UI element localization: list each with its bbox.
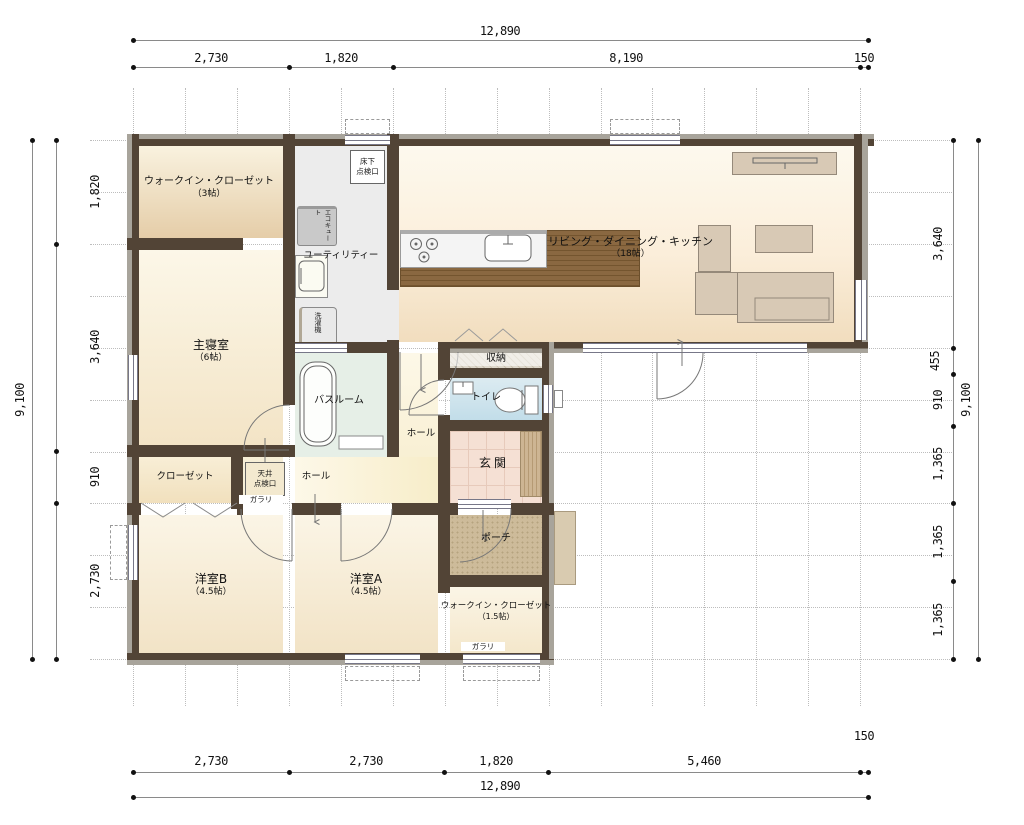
label-wic15: ウォークイン・クローゼット （1.5帖）	[440, 601, 552, 622]
label-toilet: トイレ	[450, 392, 522, 405]
floorplan: ウォークイン・クローゼット （3帖） 主寝室 （6帖） リビング・ダイニング・キ…	[133, 140, 868, 659]
label-louver-b: ガラリ	[461, 642, 505, 651]
dim-bottom-offset: 150	[841, 729, 887, 743]
dim-tick-dot	[858, 65, 863, 70]
dim-tick-dot	[976, 657, 981, 662]
dim-tick-dot	[287, 65, 292, 70]
room-name: リビング・ダイニング・キッチン	[508, 235, 753, 249]
dim-tick-dot	[391, 65, 396, 70]
room-size: （4.5帖）	[141, 587, 281, 598]
dim-tick-dot	[54, 242, 59, 247]
dim-right-5: 1,365	[931, 507, 945, 577]
dim-left-4: 2,730	[88, 546, 102, 616]
dim-left-2: 3,640	[88, 312, 102, 382]
dim-tick-dot	[287, 770, 292, 775]
floor-inspection-hatch: 床下 点検口	[350, 150, 385, 184]
dim-tick-dot	[54, 501, 59, 506]
label-closet: クローゼット	[139, 471, 231, 483]
dim-top-3: 8,190	[576, 51, 676, 65]
shutter-wic15-south	[463, 666, 540, 681]
dim-line-bottom-seg	[133, 772, 868, 773]
dim-left-3: 910	[88, 442, 102, 512]
room-name: 洋室B	[141, 572, 281, 587]
dim-tick-dot	[546, 770, 551, 775]
dim-top-4: 150	[840, 51, 888, 65]
room-size: （18帖）	[508, 249, 753, 260]
dim-tick-dot	[866, 65, 871, 70]
label-room-b: 洋室B （4.5帖）	[141, 572, 281, 598]
dim-right-4: 1,365	[931, 429, 945, 499]
dim-tick-dot	[866, 38, 871, 43]
label-utility: ユーティリティー	[283, 250, 399, 262]
label-hall-upper: ホール	[395, 428, 447, 440]
label-porch: ポーチ	[450, 533, 542, 546]
dim-tick-dot	[951, 657, 956, 662]
dim-tick-dot	[951, 346, 956, 351]
dim-tick-dot	[30, 657, 35, 662]
dim-right-6: 1,365	[931, 585, 945, 655]
ceiling-inspection-hatch: 天井 点検口	[245, 462, 285, 496]
dim-tick-dot	[976, 138, 981, 143]
dim-top-total: 12,890	[440, 24, 560, 38]
dim-tick-dot	[951, 501, 956, 506]
label-storage: 収納	[450, 353, 542, 366]
room-size: （3帖）	[135, 189, 283, 200]
dim-tick-dot	[951, 372, 956, 377]
floorplan-canvas: { "rooms": { "wic3": {"name": "ウォークイン・クロ…	[0, 0, 1024, 825]
dim-tick-dot	[54, 138, 59, 143]
dim-tick-dot	[951, 424, 956, 429]
dim-tick-dot	[131, 770, 136, 775]
label-louver-a: ガラリ	[239, 495, 283, 504]
dim-bottom-2: 2,730	[316, 754, 416, 768]
dim-tick-dot	[866, 795, 871, 800]
dim-top-1: 2,730	[161, 51, 261, 65]
dim-left-1: 1,820	[88, 157, 102, 227]
dim-tick-dot	[54, 449, 59, 454]
dim-right-1: 3,640	[931, 209, 945, 279]
dim-right-3: 910	[931, 365, 945, 435]
dim-bottom-3: 1,820	[446, 754, 546, 768]
dim-left-total: 9,100	[13, 365, 27, 435]
label-bathroom: バスルーム	[289, 395, 389, 408]
room-name: ウォークイン・クローゼット	[440, 601, 552, 612]
shutter-rooma-south	[345, 666, 420, 681]
dim-tick-dot	[131, 65, 136, 70]
label-master-bedroom: 主寝室 （6帖）	[139, 338, 283, 364]
label-washer: 洗濯機	[313, 312, 323, 346]
dim-tick-dot	[866, 770, 871, 775]
window-awning-utility	[345, 119, 390, 134]
dim-right-total: 9,100	[959, 365, 973, 435]
dim-bottom-4: 5,460	[654, 754, 754, 768]
label-hall-lower: ホール	[290, 471, 342, 483]
dim-line-left-total	[32, 140, 33, 659]
label-wic3: ウォークイン・クローゼット （3帖）	[135, 176, 283, 200]
shutter-roomb-west	[110, 525, 127, 580]
label-ldk: リビング・ダイニング・キッチン （18帖）	[508, 235, 753, 260]
window-awning-ldk	[610, 119, 680, 134]
dim-tick-dot	[858, 770, 863, 775]
dim-tick-dot	[131, 38, 136, 43]
dim-tick-dot	[951, 579, 956, 584]
dim-line-bottom-total	[133, 797, 868, 798]
label-room-a: 洋室A （4.5帖）	[296, 572, 436, 598]
label-ecocute: エコキュート	[312, 209, 332, 245]
room-name: 洋室A	[296, 572, 436, 587]
room-name: ウォークイン・クローゼット	[135, 176, 283, 189]
dim-tick-dot	[951, 138, 956, 143]
label-genkan: 玄関	[450, 456, 538, 471]
dim-line-right-total	[978, 140, 979, 659]
dim-bottom-total: 12,890	[440, 779, 560, 793]
room-size: （6帖）	[139, 353, 283, 364]
dim-tick-dot	[131, 795, 136, 800]
dim-line-top-total	[133, 40, 868, 41]
dim-line-left-seg	[56, 140, 57, 659]
dim-tick-dot	[54, 657, 59, 662]
dim-tick-dot	[442, 770, 447, 775]
dim-line-top-seg	[133, 67, 868, 68]
room-size: （1.5帖）	[440, 612, 552, 622]
dim-tick-dot	[30, 138, 35, 143]
dim-top-2: 1,820	[291, 51, 391, 65]
room-size: （4.5帖）	[296, 587, 436, 598]
dim-bottom-1: 2,730	[161, 754, 261, 768]
room-name: 主寝室	[139, 338, 283, 353]
